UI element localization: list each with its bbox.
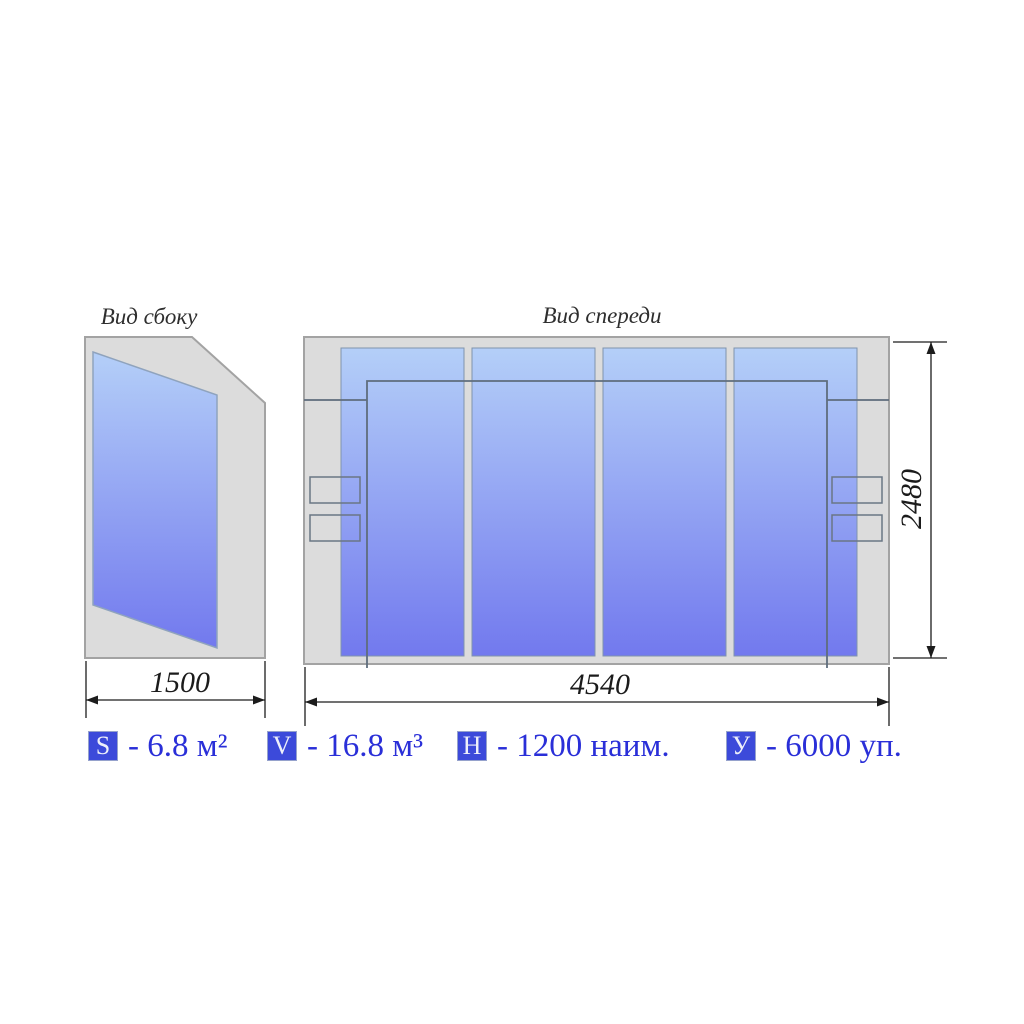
glass-panel-3 [603, 348, 726, 656]
area-value: - 6.8 м² [128, 729, 228, 763]
side-view-drawing [85, 337, 265, 658]
legend-item-area: S - 6.8 м² [88, 729, 228, 763]
dimension-front-width: 4540 [570, 668, 630, 702]
packs-symbol-badge: У [726, 731, 756, 761]
legend-item-volume: V - 16.8 м³ [267, 729, 423, 763]
names-symbol-badge: Н [457, 731, 487, 761]
diagram-canvas: Вид сбоку Вид спереди 1500 4540 2480 S -… [0, 0, 1024, 1024]
front-view-drawing [304, 337, 889, 668]
area-symbol-badge: S [88, 731, 118, 761]
legend-item-names: Н - 1200 наим. [457, 729, 670, 763]
glass-panel-2 [472, 348, 595, 656]
front-view-title: Вид спереди [542, 303, 661, 329]
dimension-height: 2480 [895, 469, 929, 529]
names-value: - 1200 наим. [497, 729, 670, 763]
dimension-side-width: 1500 [150, 666, 210, 700]
volume-value: - 16.8 м³ [307, 729, 423, 763]
legend-item-packs: У - 6000 уп. [726, 729, 902, 763]
volume-symbol-badge: V [267, 731, 297, 761]
side-view-glass [93, 352, 217, 648]
packs-value: - 6000 уп. [766, 729, 902, 763]
glass-panel-4 [734, 348, 857, 656]
side-view-title: Вид сбоку [101, 304, 198, 330]
technical-drawing [0, 0, 1024, 1024]
